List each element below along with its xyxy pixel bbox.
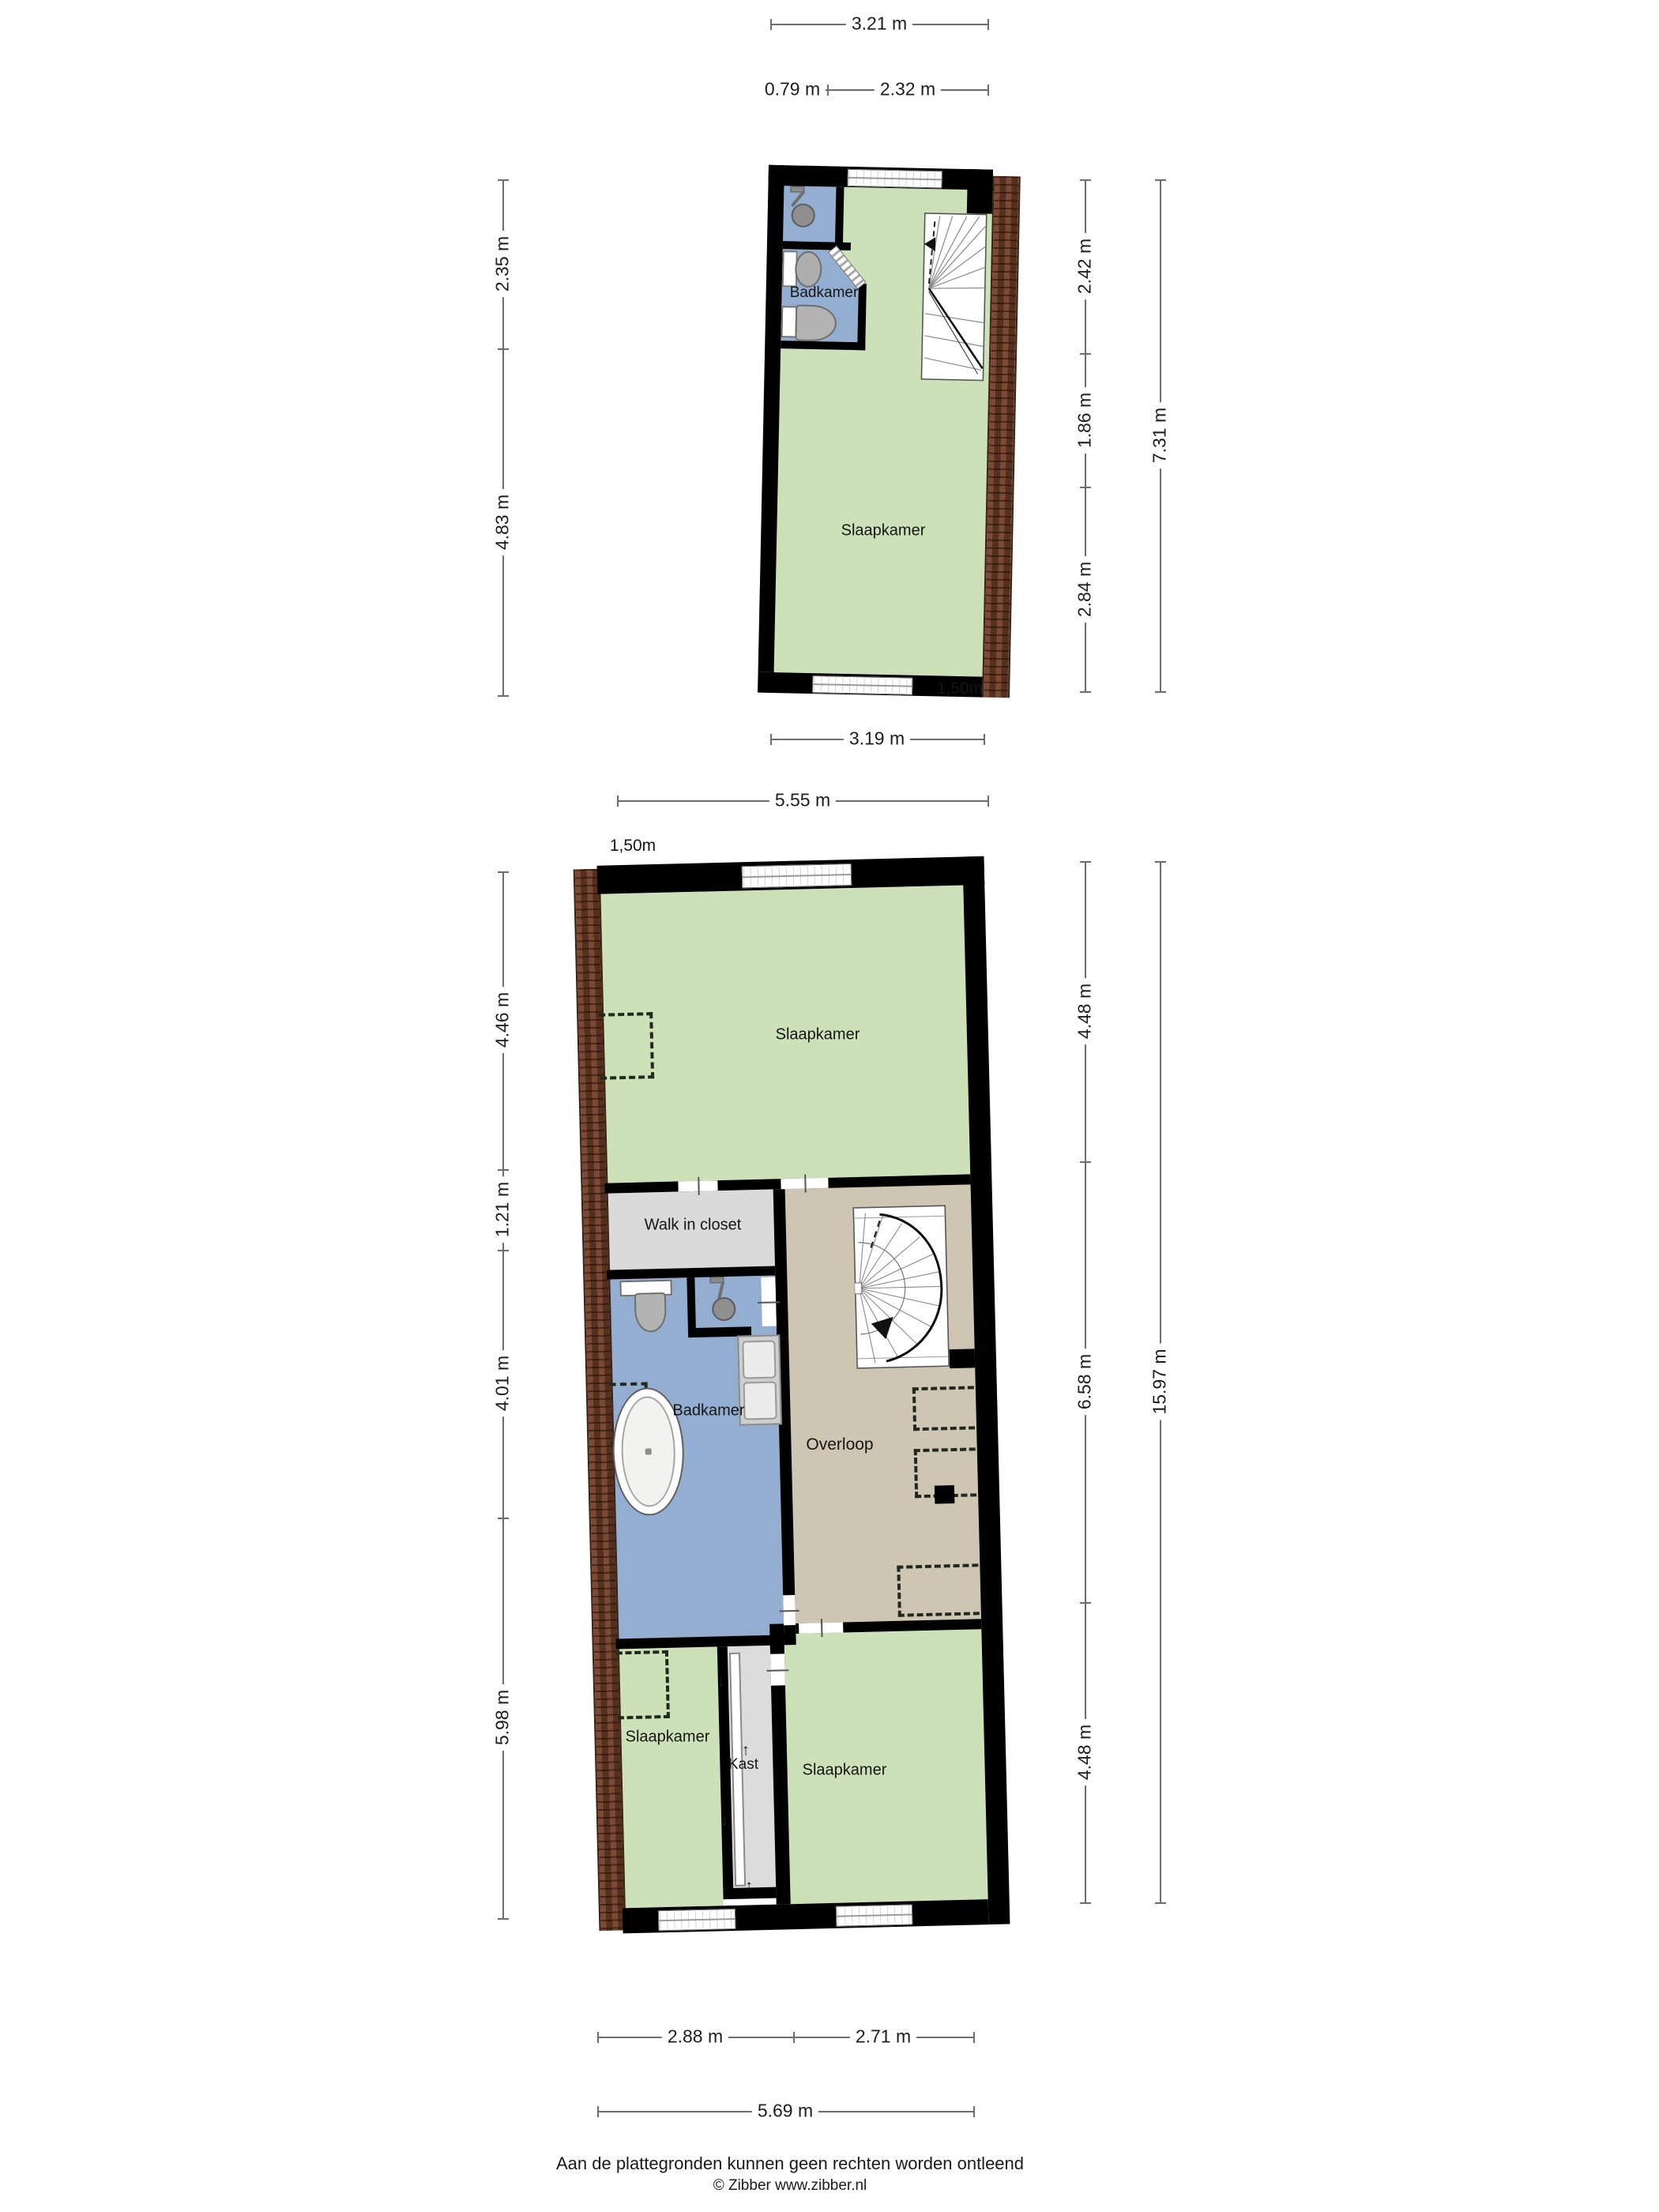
credit-text: © Zibber www.zibber.nl	[0, 2177, 1580, 2195]
dimension-tick	[498, 871, 509, 873]
dimension-tick	[498, 1250, 509, 1251]
dimension-label: 2.71 m	[850, 2026, 916, 2048]
dimension-tick	[984, 734, 985, 745]
dimension-label: 3.21 m	[846, 13, 912, 36]
room-label-slaapkamer: Slaapkamer	[776, 1026, 860, 1044]
dimension-tick	[1155, 179, 1166, 181]
height-marker: 1,50m	[937, 679, 983, 698]
dimension-tick	[1080, 861, 1091, 863]
dimension-label: 2.32 m	[875, 78, 941, 101]
room-label-slaapkamer: Slaapkamer	[626, 1729, 710, 1747]
dimension-tick	[498, 348, 509, 350]
dimension-label: 4.83 m	[491, 489, 514, 555]
height-marker: 1,50m	[610, 837, 656, 856]
room-label-badkamer: Badkamer	[672, 1402, 744, 1420]
dimension-label: 5.55 m	[769, 789, 836, 812]
annotation-overlay: 3.21 m0.79 m2.32 m2.35 m4.83 m2.42 m1.86…	[0, 0, 1659, 2212]
dimension-label: 1.21 m	[491, 1176, 514, 1243]
room-label-slaapkamer: Slaapkamer	[841, 522, 926, 540]
footer: Aan de plattegronden kunnen geen rechten…	[0, 2154, 1580, 2195]
dimension-label: 2.35 m	[491, 231, 514, 297]
dimension-tick	[498, 179, 509, 181]
dimension-tick	[973, 2106, 975, 2117]
dimension-tick	[1155, 691, 1166, 693]
dimension-label: 5.69 m	[752, 2100, 818, 2123]
dimension-label: 0.79 m	[759, 78, 826, 101]
dimension-tick	[770, 19, 772, 30]
dimension-tick	[1080, 1602, 1091, 1604]
dimension-label: 5.98 m	[491, 1684, 514, 1751]
dimension-tick	[1080, 353, 1091, 355]
dimension-label: 4.01 m	[491, 1350, 514, 1416]
dimension-tick	[597, 2032, 599, 2043]
room-label-walk-in-closet: Walk in closet	[645, 1217, 742, 1235]
dimension-tick	[770, 734, 772, 745]
dimension-label: 4.48 m	[1074, 978, 1097, 1044]
dimension-tick	[1080, 1902, 1091, 1904]
room-label-badkamer: Badkamer	[790, 284, 859, 302]
floorplan-page: ↓ ↑ ↓ ↑ 3.21 m0.79 m2.32 m2.35 m4.83 m2.	[0, 0, 1659, 2212]
dimension-tick	[987, 19, 989, 30]
dimension-tick	[597, 2106, 599, 2117]
dimension-label: 7.31 m	[1149, 402, 1172, 468]
dimension-label: 15.97 m	[1149, 1343, 1172, 1420]
dimension-tick	[987, 796, 989, 807]
dimension-tick	[1155, 861, 1166, 863]
dimension-label: 2.84 m	[1074, 556, 1097, 623]
disclaimer-text: Aan de plattegronden kunnen geen rechten…	[0, 2154, 1580, 2174]
dimension-tick	[973, 2032, 975, 2043]
dimension-line	[597, 2037, 973, 2038]
dimension-label: 1.86 m	[1074, 387, 1097, 453]
room-label-slaapkamer: Slaapkamer	[803, 1762, 887, 1780]
dimension-tick	[1080, 487, 1091, 488]
dimension-tick	[498, 1918, 509, 1920]
dimension-tick	[1080, 179, 1091, 181]
dimension-tick	[498, 1169, 509, 1171]
dimension-tick	[987, 85, 989, 96]
dimension-tick	[498, 695, 509, 697]
dimension-tick	[793, 2032, 795, 2043]
room-label-overloop: Overloop	[806, 1435, 873, 1454]
dimension-tick	[1080, 1161, 1091, 1163]
dimension-tick	[827, 85, 829, 96]
dimension-label: 2.42 m	[1074, 233, 1097, 299]
dimension-tick	[1155, 1902, 1166, 1904]
dimension-label: 2.88 m	[662, 2026, 728, 2048]
dimension-label: 3.19 m	[844, 728, 910, 750]
room-label-kast: Kast	[728, 1756, 758, 1774]
dimension-tick	[498, 1518, 509, 1519]
dimension-tick	[617, 796, 619, 807]
dimension-label: 6.58 m	[1074, 1349, 1097, 1415]
dimension-label: 4.48 m	[1074, 1719, 1097, 1785]
dimension-tick	[1080, 691, 1091, 693]
dimension-label: 4.46 m	[491, 987, 514, 1053]
